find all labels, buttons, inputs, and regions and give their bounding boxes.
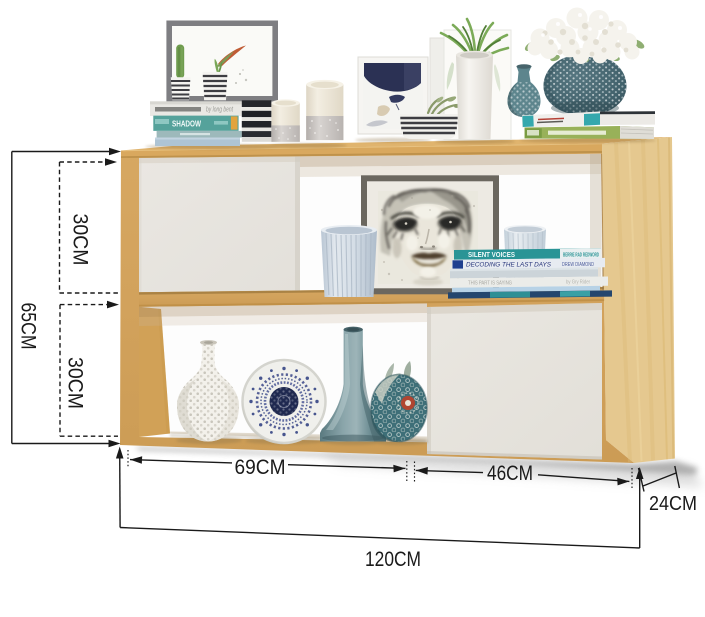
svg-text:120CM: 120CM <box>365 548 421 571</box>
svg-text:69CM: 69CM <box>235 456 286 479</box>
svg-text:BERRIE RAD REDWORD: BERRIE RAD REDWORD <box>563 253 599 259</box>
svg-text:by Gry Rider: by Gry Rider <box>566 279 590 285</box>
svg-text:DECODING THE LAST DAYS: DECODING THE LAST DAYS <box>466 262 552 269</box>
svg-text:SHADOW: SHADOW <box>172 119 202 129</box>
svg-text:by long bent: by long bent <box>206 107 234 114</box>
svg-text:30CM: 30CM <box>68 214 91 266</box>
svg-text:46CM: 46CM <box>487 462 533 485</box>
svg-text:24CM: 24CM <box>649 493 697 515</box>
svg-text:THIS PART IS SAYING: THIS PART IS SAYING <box>468 281 512 287</box>
svg-text:SILENT VOICES: SILENT VOICES <box>468 252 515 259</box>
svg-text:DREW DIAMOND: DREW DIAMOND <box>562 262 594 268</box>
svg-text:30CM: 30CM <box>63 357 86 409</box>
svg-text:65CM: 65CM <box>16 303 39 350</box>
